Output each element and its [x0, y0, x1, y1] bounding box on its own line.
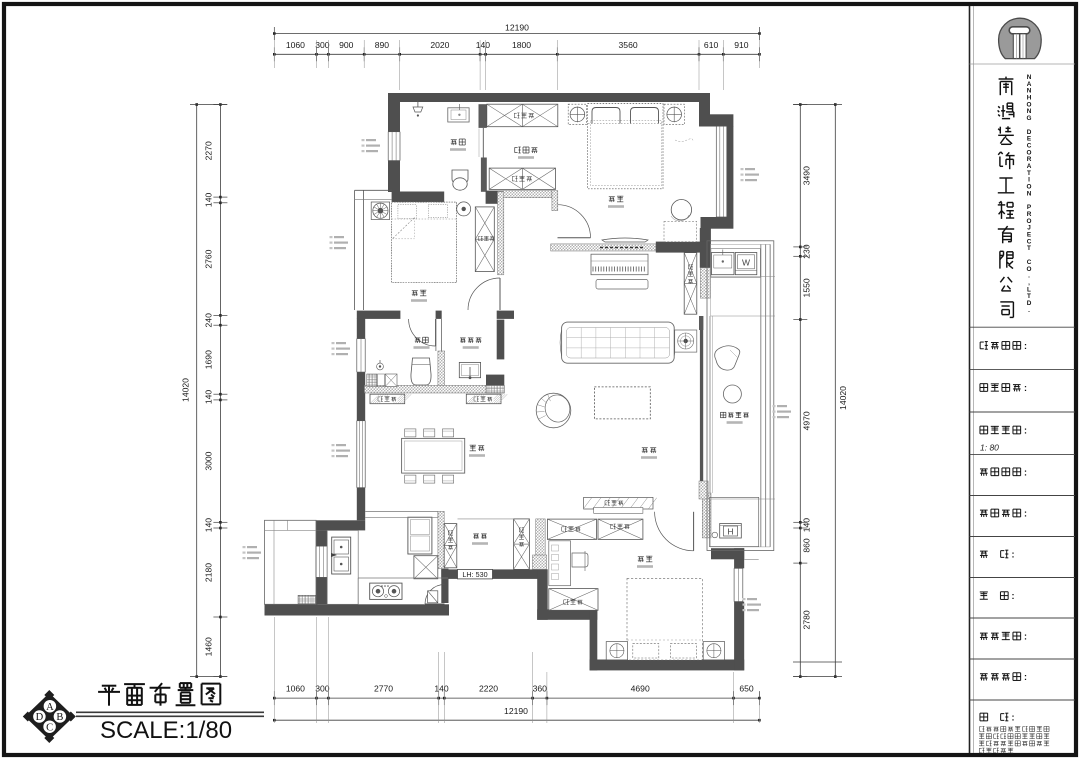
svg-text:300: 300	[315, 40, 330, 50]
svg-text:H: H	[727, 527, 733, 537]
svg-text:A: A	[46, 702, 54, 713]
svg-text::: :	[1024, 426, 1027, 436]
svg-text:1: 80: 1: 80	[980, 443, 999, 453]
svg-text:650: 650	[739, 684, 754, 694]
svg-text:140: 140	[204, 390, 214, 405]
svg-text:3560: 3560	[619, 40, 638, 50]
svg-text:910: 910	[734, 40, 749, 50]
svg-text::: :	[1024, 341, 1027, 351]
svg-text:230: 230	[802, 244, 812, 259]
svg-text:G: G	[1027, 115, 1032, 122]
svg-text::: :	[1012, 550, 1015, 560]
svg-text::: :	[1024, 632, 1027, 642]
svg-text:240: 240	[204, 313, 214, 328]
svg-text:860: 860	[802, 538, 812, 553]
svg-text::: :	[1024, 509, 1027, 519]
svg-text:12190: 12190	[504, 706, 528, 716]
svg-text::: :	[1024, 467, 1027, 477]
svg-text:D: D	[36, 712, 44, 723]
svg-text:140: 140	[434, 684, 449, 694]
svg-text:1460: 1460	[204, 637, 214, 656]
svg-text:900: 900	[339, 40, 354, 50]
svg-text:LH: 530: LH: 530	[462, 570, 487, 579]
svg-text:1060: 1060	[286, 40, 305, 50]
svg-text:3490: 3490	[802, 166, 812, 185]
svg-text::: :	[1024, 383, 1027, 393]
svg-text:4970: 4970	[802, 411, 812, 430]
svg-text:B: B	[56, 712, 63, 723]
svg-text:14020: 14020	[181, 378, 191, 402]
svg-text:W: W	[742, 258, 750, 268]
svg-text:140: 140	[802, 518, 812, 533]
svg-text:610: 610	[704, 40, 719, 50]
svg-text:2760: 2760	[204, 249, 214, 268]
svg-text:2180: 2180	[204, 563, 214, 582]
svg-text:3000: 3000	[204, 451, 214, 470]
svg-text:.: .	[1028, 307, 1030, 314]
svg-text:2780: 2780	[802, 610, 812, 629]
svg-text:C: C	[46, 722, 53, 733]
svg-text:2770: 2770	[374, 684, 393, 694]
svg-text:140: 140	[204, 518, 214, 533]
svg-text:140: 140	[204, 193, 214, 208]
svg-text:140: 140	[476, 40, 491, 50]
svg-text:N: N	[1027, 190, 1032, 197]
svg-text:12190: 12190	[505, 23, 529, 33]
svg-text:SCALE:1/80: SCALE:1/80	[100, 717, 232, 744]
svg-text:14020: 14020	[838, 386, 848, 410]
svg-text:1690: 1690	[204, 350, 214, 369]
svg-text::: :	[1012, 591, 1015, 601]
svg-text::: :	[1024, 672, 1027, 682]
svg-text:T: T	[1027, 245, 1031, 252]
svg-text::: :	[1012, 713, 1015, 723]
svg-text:4690: 4690	[631, 684, 650, 694]
svg-text:1800: 1800	[512, 40, 531, 50]
svg-text:2270: 2270	[204, 141, 214, 160]
svg-text:300: 300	[315, 684, 330, 694]
svg-text:2020: 2020	[430, 40, 449, 50]
svg-text:360: 360	[533, 684, 548, 694]
svg-text:2220: 2220	[479, 684, 498, 694]
svg-text:1550: 1550	[802, 278, 812, 297]
svg-text:1060: 1060	[286, 684, 305, 694]
svg-text:890: 890	[375, 40, 390, 50]
